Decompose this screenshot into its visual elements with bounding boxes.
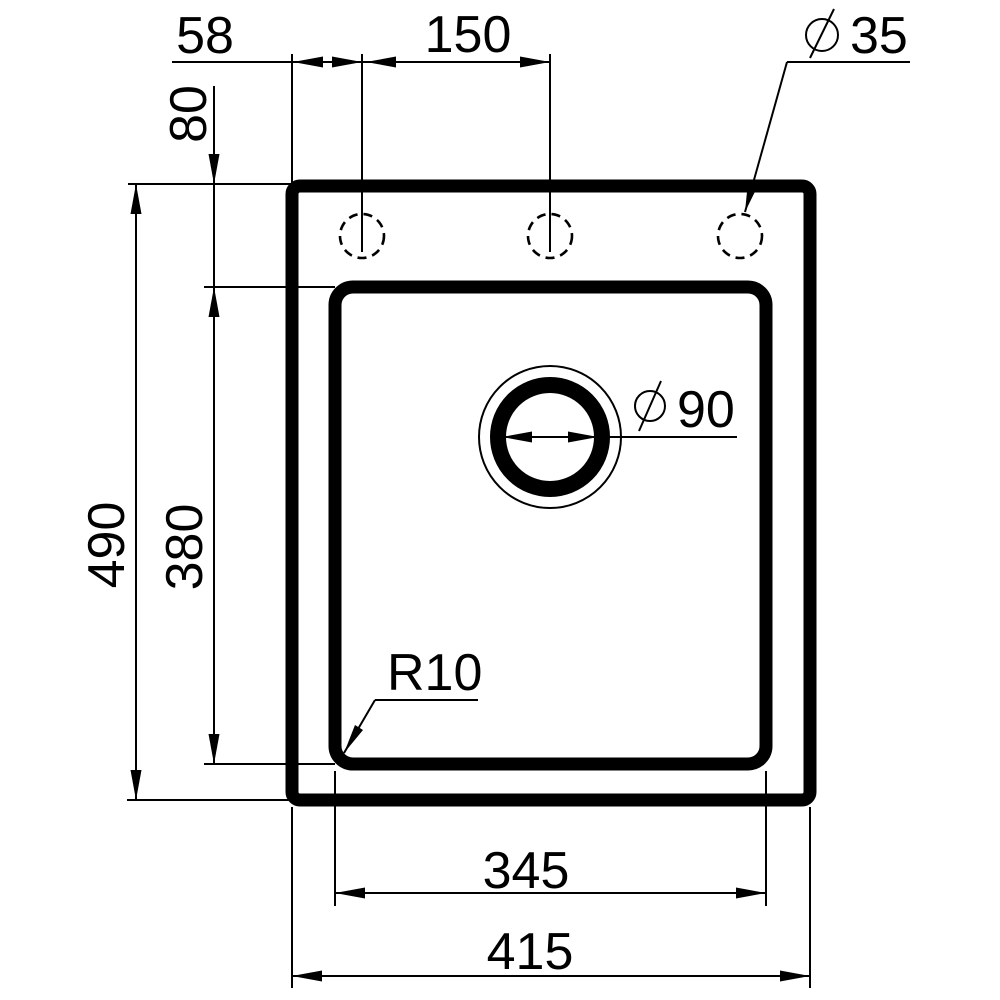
dim-text-35: 35 (850, 7, 908, 65)
arrowhead (209, 154, 220, 184)
arrowhead (131, 184, 142, 214)
dim-text-150: 150 (425, 6, 512, 64)
arrowhead (293, 57, 323, 68)
dim-text-80: 80 (160, 85, 218, 143)
diameter-symbol-icon (635, 381, 665, 431)
arrowhead (344, 725, 363, 753)
arrowhead (568, 432, 598, 443)
arrowhead (332, 57, 362, 68)
dim-text-58: 58 (176, 7, 234, 65)
diameter-symbol-slash (639, 381, 661, 431)
dim-text-415: 415 (487, 923, 574, 981)
dim-text-490: 490 (78, 502, 136, 589)
callout-corner-radius-r10: R10 (344, 644, 482, 753)
arrowhead (335, 888, 365, 899)
arrowhead (366, 57, 396, 68)
arrowhead (209, 734, 220, 764)
diameter-symbol-icon (806, 9, 838, 58)
dim-text-r10: R10 (387, 644, 482, 702)
dim-bowl-height-380: 380 (156, 287, 335, 764)
arrowhead (780, 971, 810, 982)
arrowhead (292, 971, 322, 982)
dim-text-345: 345 (483, 842, 570, 900)
dim-bowl-width-345: 345 (335, 771, 766, 906)
faucet-hole-right (718, 214, 762, 258)
arrowhead (209, 287, 220, 317)
arrowhead (736, 888, 766, 899)
arrowhead (502, 432, 532, 443)
sink-technical-drawing: 58 150 35 490 80 380 (0, 0, 1000, 1000)
dim-text-90: 90 (677, 381, 735, 439)
dim-hole-spacing-150: 150 (366, 6, 550, 252)
dim-outer-height-490: 490 (78, 184, 292, 800)
dim-rim-to-bowl-80: 80 (160, 85, 220, 764)
arrowhead (131, 770, 142, 800)
dim-text-380: 380 (156, 504, 214, 591)
arrowhead (520, 57, 550, 68)
